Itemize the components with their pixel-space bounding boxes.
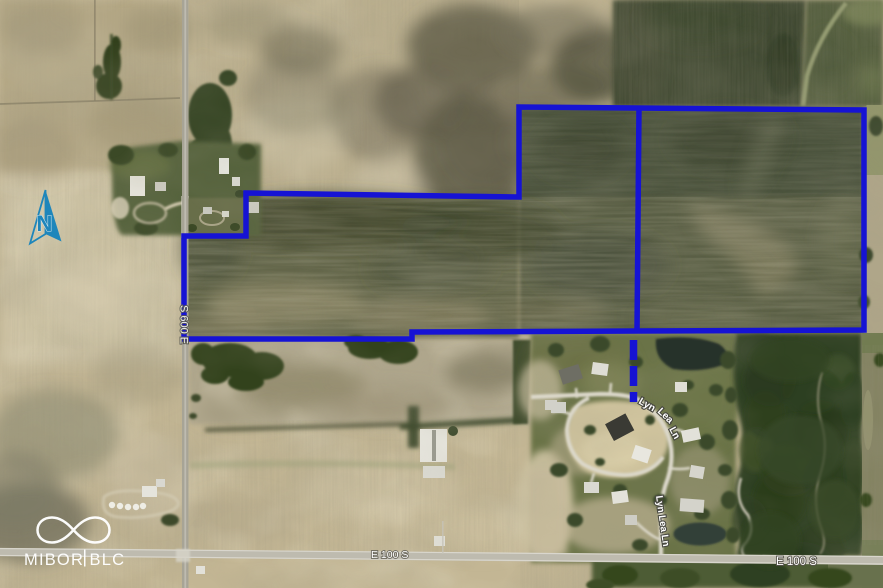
- svg-text:BLC: BLC: [90, 551, 126, 569]
- svg-text:N: N: [37, 211, 53, 236]
- svg-text:S 600 E: S 600 E: [178, 305, 190, 344]
- svg-text:MIBOR: MIBOR: [24, 551, 84, 569]
- svg-text:E 100 S: E 100 S: [776, 556, 817, 568]
- svg-text:E 100 S: E 100 S: [371, 549, 408, 561]
